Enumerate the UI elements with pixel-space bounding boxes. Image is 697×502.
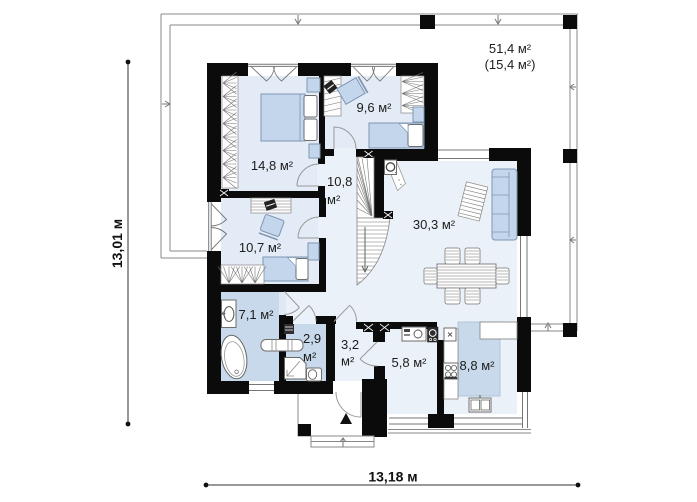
svg-text:10,8: 10,8	[327, 174, 352, 189]
svg-text:м²: м²	[303, 349, 317, 364]
svg-text:10,7 м²: 10,7 м²	[239, 240, 282, 255]
svg-text:м²: м²	[341, 354, 355, 369]
svg-text:13,01 м: 13,01 м	[109, 219, 125, 268]
svg-text:9,6 м²: 9,6 м²	[357, 100, 393, 115]
svg-text:13,18 м: 13,18 м	[368, 469, 417, 485]
svg-text:8,8 м²: 8,8 м²	[460, 358, 496, 373]
svg-text:(15,4 м²): (15,4 м²)	[485, 57, 536, 72]
svg-text:3,2: 3,2	[341, 337, 359, 352]
svg-text:5,8 м²: 5,8 м²	[392, 355, 428, 370]
svg-text:м²: м²	[327, 192, 341, 207]
svg-text:2,9: 2,9	[303, 331, 321, 346]
svg-text:51,4 м²: 51,4 м²	[489, 41, 532, 56]
svg-text:7,1 м²: 7,1 м²	[239, 307, 275, 322]
svg-text:14,8 м²: 14,8 м²	[251, 158, 294, 173]
svg-text:30,3 м²: 30,3 м²	[413, 217, 456, 232]
